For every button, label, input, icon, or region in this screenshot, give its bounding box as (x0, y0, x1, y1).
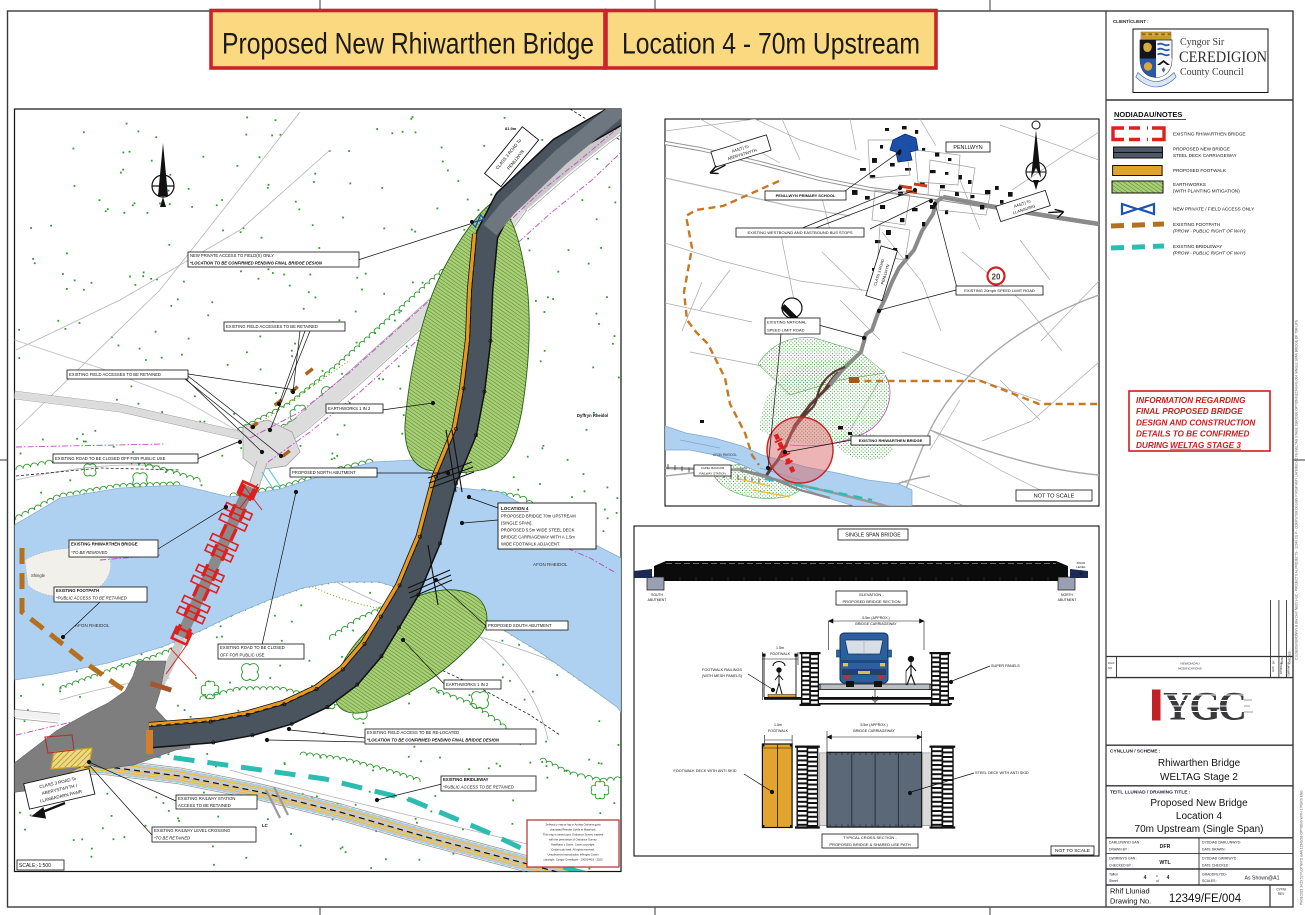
svg-text:BRIDGE CARRIAGEWAY WITH A 1.5m: BRIDGE CARRIAGEWAY WITH A 1.5m (501, 535, 575, 540)
svg-text:GWIRIWYD GAN :: GWIRIWYD GAN : (1109, 857, 1137, 861)
svg-text:GRADDFEYDD-: GRADDFEYDD- (1202, 873, 1227, 877)
svg-text:EXISTING RHIWARTHEN BRIDGE: EXISTING RHIWARTHEN BRIDGE (1173, 132, 1246, 137)
svg-text:OFF FOR PUBLIC USE: OFF FOR PUBLIC USE (220, 653, 265, 658)
svg-text:with the permission of Ordnanc: with the permission of Ordnance Survey. (549, 838, 597, 842)
svg-text:AFON RHEIDOL: AFON RHEIDOL (713, 453, 737, 457)
svg-text:Location 4 - 70m Upstream: Location 4 - 70m Upstream (622, 28, 920, 61)
svg-text:SUPER PANELS: SUPER PANELS (991, 664, 1020, 668)
svg-text:SCALE:-1:500: SCALE:-1:500 (19, 863, 51, 869)
svg-text:NORTH: NORTH (1061, 593, 1074, 597)
svg-text:70m Upstream (Single Span): 70m Upstream (Single Span) (1135, 824, 1264, 835)
svg-text:EARTHWORKS 1 IN 2: EARTHWORKS 1 IN 2 (328, 406, 371, 411)
svg-text:PROPOSED FOOTWALK: PROPOSED FOOTWALK (1173, 168, 1227, 173)
svg-text:EXISTING RHIWARTHEN BRIDGE: EXISTING RHIWARTHEN BRIDGE (71, 542, 138, 547)
svg-text:EXISTING 20mph SPEED LIMIT ROA: EXISTING 20mph SPEED LIMIT ROAD (964, 288, 1035, 293)
svg-text:NODIADAU/NOTES: NODIADAU/NOTES (1114, 110, 1182, 119)
svg-text:DYDDIAD GWIRIWYD :: DYDDIAD GWIRIWYD : (1202, 857, 1238, 861)
svg-text:NEWIDIADAU: NEWIDIADAU (1180, 662, 1199, 666)
svg-text:RAILWAY STATION: RAILWAY STATION (699, 471, 725, 475)
svg-text:LC: LC (262, 823, 269, 828)
svg-text:PENLLWYN: PENLLWYN (953, 145, 982, 151)
svg-text:CHECKED: CHECKED (1288, 651, 1292, 664)
svg-text:This map is based upon Ordnanc: This map is based upon Ordnance Survey m… (543, 833, 604, 837)
svg-text:FOOTWALK: FOOTWALK (770, 652, 791, 656)
svg-text:Location 4: Location 4 (1176, 811, 1223, 822)
svg-text:WELTAG STAGE 3: WELTAG STAGE 3 (1170, 441, 1241, 450)
svg-text:PROPOSED 5.5m WIDE STEEL DECK: PROPOSED 5.5m WIDE STEEL DECK (501, 528, 575, 533)
svg-text:EXISTING ROAD TO BE CLOSED OFF: EXISTING ROAD TO BE CLOSED OFF FOR PUBLI… (55, 456, 166, 461)
svg-text:(SINGLE SPAN).: (SINGLE SPAN). (501, 521, 533, 526)
svg-text:CAPEL BANGOR: CAPEL BANGOR (701, 466, 725, 470)
svg-text:CYFNI: CYFNI (1276, 888, 1286, 892)
svg-text:*LOCATION TO BE CONFIRMED PEND: *LOCATION TO BE CONFIRMED PENDING FINAL … (190, 261, 323, 266)
svg-text:4: 4 (1167, 875, 1170, 881)
svg-text:EARTHWORKS 1 IN 2: EARTHWORKS 1 IN 2 (446, 682, 489, 687)
svg-text:4: 4 (1144, 875, 1147, 881)
svg-text:EXISTING BRIDLEWAY: EXISTING BRIDLEWAY (443, 777, 489, 782)
svg-text:BRIDGE CARRIAGEWAY: BRIDGE CARRIAGEWAY (853, 729, 895, 733)
svg-text:County Council: County Council (1180, 67, 1244, 78)
svg-text:copyright. Cyngor Ceredigion -: copyright. Cyngor Ceredigion - 100024419… (543, 858, 603, 862)
svg-text:GAN: GAN (1271, 666, 1275, 672)
svg-text:Drawing No.: Drawing No. (1110, 897, 1151, 906)
svg-text:EXISTING FOOTPATH: EXISTING FOOTPATH (56, 588, 99, 593)
svg-text:INFORMATION REGARDING: INFORMATION REGARDING (1136, 396, 1246, 405)
svg-text:Cedwir pob hawl. All rights re: Cedwir pob hawl. All rights reserved. (551, 848, 595, 852)
svg-text:20: 20 (992, 273, 1001, 282)
svg-text:FOOTWALK DECK WITH ANTI SKID: FOOTWALK DECK WITH ANTI SKID (674, 769, 737, 773)
svg-text:CLIENT/CLIENT :: CLIENT/CLIENT : (1113, 19, 1149, 24)
svg-text:EXISTING BRIDLEWAY: EXISTING BRIDLEWAY (1173, 244, 1222, 249)
svg-text:DATE: DATE (1280, 657, 1284, 664)
svg-text:LEVEL: LEVEL (1076, 565, 1086, 569)
svg-text:WTL: WTL (1159, 860, 1171, 866)
svg-text:EXISTING FOOTPATH: EXISTING FOOTPATH (1173, 222, 1220, 227)
svg-text:STEEL DECK WITH ANTI SKID: STEEL DECK WITH ANTI SKID (975, 771, 1029, 775)
svg-text:CHECKED BY :: CHECKED BY : (1109, 864, 1133, 868)
svg-text:EXISTING FIELD ACCESSES TO BE: EXISTING FIELD ACCESSES TO BE RETAINED (69, 372, 161, 377)
svg-text:FOOTWALK RAILINGS: FOOTWALK RAILINGS (702, 668, 742, 672)
svg-text:1.5m: 1.5m (776, 646, 784, 650)
svg-text:CYNLLUN / SCHEME :: CYNLLUN / SCHEME : (1110, 749, 1161, 755)
svg-text:DURING: DURING (1136, 441, 1169, 450)
svg-text:Ph/01/2023 14:29:52 PLOTIWY: Ph/01/2023 14:29:52 PLOTIWYD GAN 12349/2… (1300, 790, 1304, 905)
svg-text:Rhiwarthen Bridge: Rhiwarthen Bridge (1158, 758, 1241, 769)
svg-text:CEREDIGION: CEREDIGION (1179, 49, 1267, 66)
svg-text:chaniatad Rheolwr Llyfrfa ei M: chaniatad Rheolwr Llyfrfa ei Mawrhydi. (550, 828, 596, 832)
svg-text:FOOTWALK: FOOTWALK (768, 729, 789, 733)
svg-text:DARLUNWYD GAN :: DARLUNWYD GAN : (1109, 841, 1141, 845)
svg-text:PROPOSED NEW BRIDGE: PROPOSED NEW BRIDGE (1173, 147, 1230, 152)
svg-text:*LOCATION TO BE CONFIRMED PEND: *LOCATION TO BE CONFIRMED PENDING FINAL … (367, 738, 500, 743)
svg-text:ABUTMENT: ABUTMENT (648, 598, 667, 602)
svg-text:BY: BY (1272, 660, 1276, 664)
svg-text:(WITH MESH PANELS): (WITH MESH PANELS) (702, 674, 743, 678)
svg-text:DESIGN AND CONSTRUCTION: DESIGN AND CONSTRUCTION (1136, 418, 1256, 427)
svg-text:TEITL LLUNIAD / DRAWING TITLE: TEITL LLUNIAD / DRAWING TITLE : (1110, 790, 1191, 796)
svg-text:(WITH PLANTING MITIGATION): (WITH PLANTING MITIGATION) (1173, 189, 1240, 194)
svg-text:PROPOSED NORTH ABUTMENT: PROPOSED NORTH ABUTMENT (292, 470, 356, 475)
svg-text:1.5m: 1.5m (774, 723, 782, 727)
svg-text:Shingle: Shingle (31, 573, 46, 578)
svg-text:SOUTH: SOUTH (651, 593, 663, 597)
svg-text:5.5m (APPROX.): 5.5m (APPROX.) (860, 723, 887, 727)
svg-text:DFR: DFR (1160, 844, 1171, 850)
svg-text:ABUTMENT: ABUTMENT (1058, 598, 1077, 602)
svg-text:PROPOSED BRIDGE 70m UPSTREAM: PROPOSED BRIDGE 70m UPSTREAM (501, 514, 576, 519)
svg-text:Cyngor Sir: Cyngor Sir (1180, 37, 1225, 48)
svg-text:Taflen: Taflen (1109, 873, 1118, 877)
svg-text:EXISTING FIELD ACCESS TO BE RE: EXISTING FIELD ACCESS TO BE RE-LOCATED (367, 730, 459, 735)
svg-text:(PROW - PUBLIC RIGHT OF WAY): (PROW - PUBLIC RIGHT OF WAY) (1173, 229, 1246, 234)
svg-text:Sheet: Sheet (1109, 879, 1118, 883)
svg-text:C:\USERS\VERONWY.B GW DHY N: C:\USERS\VERONWY.B GW DHY NE03 9 GC - PR… (1295, 320, 1299, 660)
svg-text:BRIDGE CARRIAGEWAY: BRIDGE CARRIAGEWAY (855, 622, 897, 626)
svg-text:Rhif Lluniad: Rhif Lluniad (1110, 887, 1150, 896)
svg-text:WELTAG Stage 2: WELTAG Stage 2 (1160, 772, 1238, 783)
svg-text:EXISTING FIELD ACCESSES TO BE: EXISTING FIELD ACCESSES TO BE RETAINED (226, 324, 318, 329)
svg-text:NOT TO SCALE: NOT TO SCALE (1055, 848, 1090, 854)
svg-text:Dyffryn Rheidol: Dyffryn Rheidol (577, 413, 608, 418)
svg-text:*PUBLIC ACCESS TO BE RETAINED: *PUBLIC ACCESS TO BE RETAINED (443, 785, 514, 790)
svg-text:Proposed New Rhiwarthen Bridge: Proposed New Rhiwarthen Bridge (222, 28, 594, 61)
svg-text:EARTHWORKS: EARTHWORKS (1173, 182, 1206, 187)
svg-text:AFON RHEIDOL: AFON RHEIDOL (533, 562, 568, 567)
svg-text:o: o (1156, 874, 1158, 878)
svg-text:NOT TO SCALE: NOT TO SCALE (1034, 493, 1075, 499)
svg-text:MODIFICATIONS: MODIFICATIONS (1178, 667, 1202, 671)
svg-text:*PUBLIC ACCESS TO BE RETAINED: *PUBLIC ACCESS TO BE RETAINED (56, 596, 127, 601)
svg-text:EXISTING RAILWAY LEVEL CROSSIN: EXISTING RAILWAY LEVEL CROSSING (154, 828, 230, 833)
svg-text:TYPICAL CROSS-SECTION -: TYPICAL CROSS-SECTION - (843, 835, 897, 840)
svg-text:(PROW - PUBLIC RIGHT OF WAY): (PROW - PUBLIC RIGHT OF WAY) (1173, 251, 1246, 256)
svg-text:PROPOSED BRIDGE & SHARED USE P: PROPOSED BRIDGE & SHARED USE PATH (829, 842, 910, 847)
svg-text:STEEL DECK CARRIAGEWAY: STEEL DECK CARRIAGEWAY (1173, 153, 1237, 158)
svg-text:NEW PRIVATE ACCESS TO FIELD(S): NEW PRIVATE ACCESS TO FIELD(S) ONLY (190, 253, 274, 258)
svg-text:PROPOSED BRIDGE SECTION: PROPOSED BRIDGE SECTION (842, 599, 900, 604)
svg-text:DATE CHECKED :: DATE CHECKED : (1202, 864, 1230, 868)
svg-text:WIDE FOOTWALK ADJACENT.: WIDE FOOTWALK ADJACENT. (501, 542, 560, 547)
svg-text:EXISTING RAILWAY STATION: EXISTING RAILWAY STATION (178, 796, 235, 801)
svg-text:DETAILS TO BE CONFIRMED: DETAILS TO BE CONFIRMED (1136, 430, 1249, 439)
svg-text:ACCESS TO BE RETAINED: ACCESS TO BE RETAINED (178, 803, 231, 808)
svg-text:LOCATION 4: LOCATION 4 (501, 506, 529, 511)
svg-text:Hawlfraint y Goron. Crown copy: Hawlfraint y Goron. Crown copyright. (551, 843, 595, 847)
svg-text:RHIF: RHIF (1108, 661, 1115, 665)
svg-text:FINAL PROPOSED BRIDGE: FINAL PROPOSED BRIDGE (1136, 407, 1243, 416)
svg-text:DYDDIAD DARLUNWYD-: DYDDIAD DARLUNWYD- (1202, 841, 1241, 845)
svg-text:PROPOSED SOUTH ABUTMENT: PROPOSED SOUTH ABUTMENT (488, 623, 552, 628)
svg-text:EXISTING RHIWARTHEN BRIDGE: EXISTING RHIWARTHEN BRIDGE (859, 438, 923, 443)
svg-text:EXISTING ROAD TO BE CLOSED: EXISTING ROAD TO BE CLOSED (220, 645, 285, 650)
svg-text:EXISTING NATIONAL: EXISTING NATIONAL (767, 319, 807, 324)
svg-text:AFON RHEIDOL: AFON RHEIDOL (75, 623, 110, 628)
svg-text:Proposed New Bridge: Proposed New Bridge (1150, 798, 1248, 809)
svg-text:NEW PRIVATE / FIELD ACCESS ONL: NEW PRIVATE / FIELD ACCESS ONLY (1173, 207, 1254, 212)
svg-text:As Shown@A1: As Shown@A1 (1245, 876, 1280, 882)
svg-text:EXISTING WESTBOUND AND EASTBOU: EXISTING WESTBOUND AND EASTBOUND BUS STO… (747, 230, 852, 235)
svg-text:SCALES :: SCALES : (1202, 879, 1217, 883)
svg-text:REV: REV (1278, 892, 1285, 896)
svg-text:*TO BE REMOVED: *TO BE REMOVED (71, 550, 107, 555)
svg-text:ELEVATION -: ELEVATION - (859, 592, 884, 597)
svg-text:81.9m: 81.9m (505, 126, 517, 131)
svg-text:of: of (1156, 879, 1159, 883)
svg-text:SINGLE SPAN BRIDGE: SINGLE SPAN BRIDGE (845, 532, 901, 538)
svg-text:*TO BE RETAINED: *TO BE RETAINED (154, 836, 190, 841)
svg-text:SPEED LIMIT ROAD: SPEED LIMIT ROAD (767, 327, 805, 332)
svg-text:PENLLWYN PRIMARY SCHOOL: PENLLWYN PRIMARY SCHOOL (776, 193, 836, 198)
svg-text:5.5m (APPROX.): 5.5m (APPROX.) (862, 616, 889, 620)
svg-text:12349/FE/004: 12349/FE/004 (1169, 893, 1242, 905)
svg-text:Unauthorised reproduction infr: Unauthorised reproduction infringes Crow… (547, 853, 599, 857)
svg-text:DRAWN BY :: DRAWN BY : (1109, 848, 1129, 852)
svg-text:Seiliwyd y map ar fap yr Arolw: Seiliwyd y map ar fap yr Arolwg Ordnans … (546, 823, 601, 827)
svg-text:DATE DRAWN :: DATE DRAWN : (1202, 848, 1226, 852)
